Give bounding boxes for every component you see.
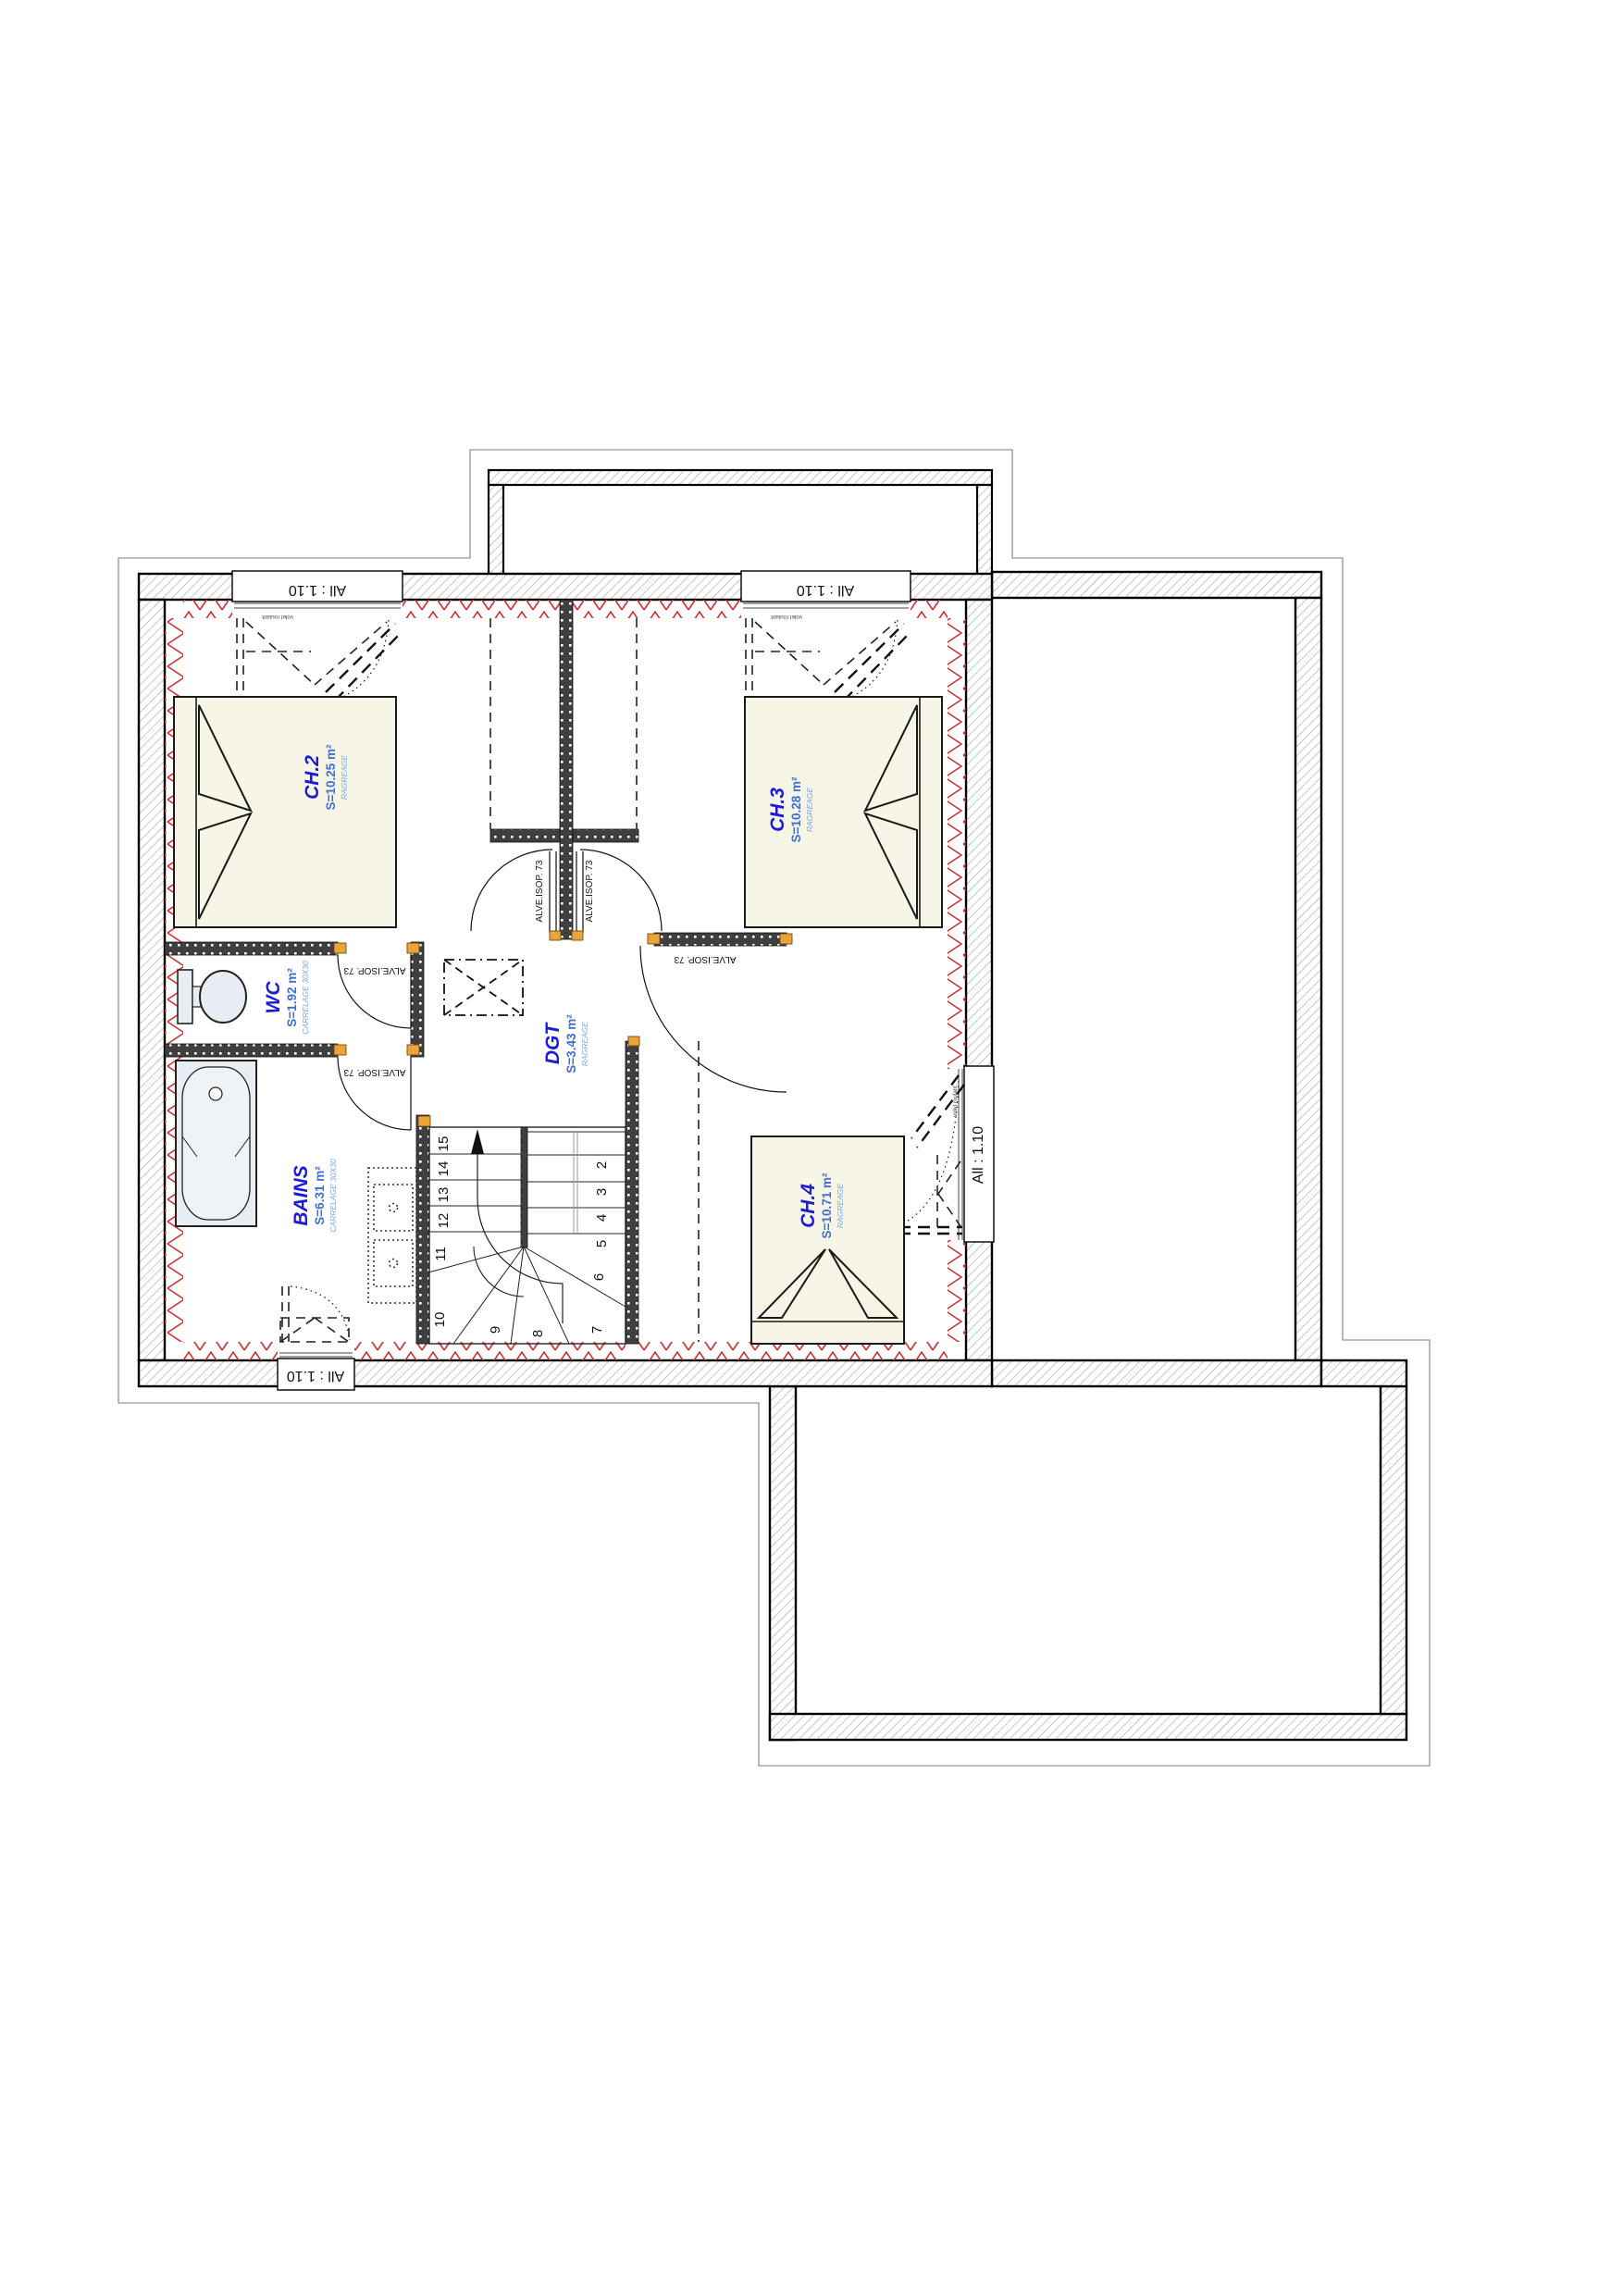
floor-plan-drawing: All : 1.10 volet roulant All : 1.10 vole…: [0, 0, 1623, 2296]
room-name: DGT: [542, 1022, 564, 1065]
shutter-note: volet roulant: [262, 614, 293, 620]
window-ch2: All : 1.10 volet roulant: [232, 571, 403, 620]
room-area: S=3.43 m²: [564, 1014, 578, 1074]
stair-step-4: 4: [594, 1214, 610, 1222]
stair-step-11: 11: [433, 1247, 449, 1261]
window-label: All : 1.10: [971, 1126, 986, 1184]
room-area: S=6.31 m²: [313, 1166, 327, 1225]
bed-ch2: [174, 697, 396, 927]
stair-step-9: 9: [488, 1326, 503, 1334]
annex-walls: [992, 572, 1321, 1386]
room-name: WC: [263, 981, 284, 1014]
door-label-bains: ALVE.ISOP. 73: [343, 1067, 405, 1077]
stair-step-6: 6: [591, 1273, 607, 1281]
door-label-ch4: ALVE.ISOP. 73: [674, 954, 736, 964]
door-label-wc: ALVE.ISOP. 73: [343, 965, 405, 975]
window-bains: All : 1.10: [278, 1353, 354, 1390]
room-label-bains: BAINS S=6.31 m² CARRELAGE 30X30: [291, 1159, 338, 1233]
window-projection-ch2: [237, 618, 401, 709]
bed-ch4: [751, 1136, 904, 1344]
stair-step-2: 2: [594, 1161, 610, 1169]
window-ch3: All : 1.10 volet roulant: [741, 571, 911, 620]
stair-left-wall: [416, 1115, 429, 1344]
room-area: S=10.28 m²: [789, 776, 803, 842]
floor-plan-page: All : 1.10 volet roulant All : 1.10 vole…: [0, 0, 1623, 2296]
stair-step-7: 7: [589, 1326, 605, 1334]
door-label-closet-left: ALVE.ISOP. 73: [535, 860, 545, 922]
room-area: S=1.92 m²: [285, 968, 299, 1027]
chimney-block: [489, 470, 992, 577]
stair-step-12: 12: [436, 1213, 452, 1229]
stair-up-arrow-icon: [471, 1129, 484, 1154]
room-finish: RAGREAGE: [340, 755, 349, 800]
stair-step-14: 14: [436, 1161, 452, 1177]
ch3-ch4-wall: [654, 933, 787, 946]
bathtub-icon: [176, 1061, 256, 1226]
window-label: All : 1.10: [797, 582, 854, 598]
room-area: S=10.25 m²: [324, 744, 338, 810]
shutter-note: volet roulant: [771, 614, 802, 620]
room-area: S=10.71 m²: [820, 1173, 834, 1238]
room-label-dgt: DGT S=3.43 m² RAGREAGE: [542, 1014, 589, 1074]
room-name: BAINS: [291, 1165, 312, 1225]
stair-step-5: 5: [594, 1240, 610, 1247]
closet-stub-right: [573, 829, 638, 842]
stair-step-15: 15: [436, 1136, 452, 1152]
room-finish: CARRELAGE 30X30: [328, 1159, 338, 1233]
stair-right-wall: [626, 1041, 638, 1344]
room-finish: RAGREAGE: [836, 1184, 845, 1229]
stair-step-13: 13: [436, 1187, 452, 1203]
wc-bains-wall: [165, 1044, 338, 1057]
room-name: CH.4: [798, 1184, 819, 1228]
window-label: All : 1.10: [289, 582, 346, 598]
window-label: All : 1.10: [287, 1368, 344, 1384]
wc-top-wall: [165, 942, 338, 955]
room-finish: CARRELAGE 30X30: [301, 961, 310, 1035]
room-finish: RAGREAGE: [805, 788, 814, 833]
closet-stub-left: [490, 829, 560, 842]
door-label-closet-right: ALVE.ISOP. 73: [585, 860, 595, 922]
stair-step-10: 10: [432, 1312, 448, 1328]
central-divider-wall: [560, 600, 573, 939]
room-finish: RAGREAGE: [580, 1022, 589, 1067]
stair-step-3: 3: [594, 1188, 610, 1196]
toilet-icon: [178, 970, 246, 1024]
extension-walls: [770, 1360, 1406, 1740]
room-name: CH.2: [302, 755, 323, 800]
washbasin-unit-icon: [368, 1168, 416, 1303]
stair-spine-wall: [521, 1127, 527, 1247]
stair-step-8: 8: [530, 1330, 546, 1337]
wc-side-stub: [411, 942, 424, 1057]
window-projection-bains: [280, 1286, 350, 1342]
room-label-wc: WC S=1.92 m² CARRELAGE 30X30: [263, 961, 310, 1035]
window-projection-ch3: [746, 618, 910, 709]
room-name: CH.3: [767, 788, 788, 832]
skylight-hatch-box: [444, 960, 523, 1015]
